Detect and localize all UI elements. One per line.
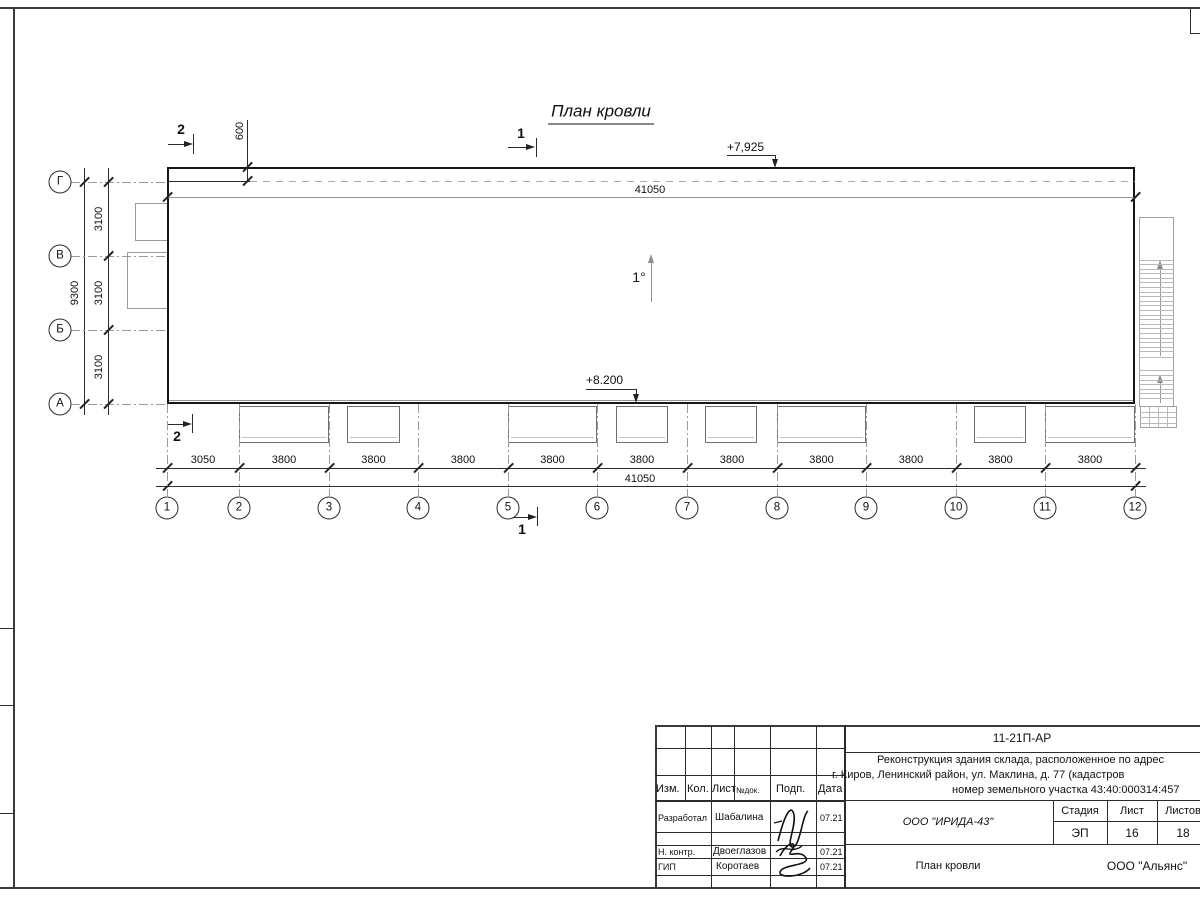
stage-label: Стадия	[1061, 805, 1099, 817]
stair-step	[1139, 328, 1174, 329]
axis-centerline-horizontal	[71, 330, 167, 331]
stair-step	[1139, 296, 1174, 297]
row2-date: 07.21	[820, 847, 843, 857]
frame-top-line	[0, 7, 1200, 9]
row2-name: Двоеглазов	[713, 846, 766, 857]
left-protrusion	[127, 252, 168, 309]
section-cut-line	[536, 138, 537, 157]
design-org: ООО "ИРИДА-43"	[903, 816, 994, 828]
section-mark-1-label: 1	[518, 521, 526, 537]
slope-arrow-line	[651, 262, 652, 302]
dim-line-600	[247, 120, 248, 182]
col-data-label: Дата	[818, 783, 842, 795]
row2-role: Н. контр.	[658, 847, 695, 857]
section-arrow-icon	[528, 514, 537, 520]
stair-step	[1139, 287, 1174, 288]
section-cut-line	[192, 414, 193, 433]
stair-step	[1139, 319, 1174, 320]
axis-centerline-vertical	[777, 404, 778, 496]
stair-step	[1139, 273, 1174, 274]
list-value: 16	[1125, 826, 1138, 840]
dim-text-segment: 3800	[1078, 454, 1102, 466]
axis-centerline-vertical	[329, 404, 330, 496]
platform-grid-line	[1140, 417, 1177, 418]
sheet-name: План кровли	[916, 860, 981, 872]
dim-text-segment: 3800	[361, 454, 385, 466]
axis-circle-12: 12	[1124, 497, 1147, 520]
row3-role: ГИП	[658, 862, 676, 872]
titleblock-row-line	[1053, 821, 1200, 822]
stair-step	[1139, 333, 1174, 334]
dim-text-segment: 3800	[809, 454, 833, 466]
section-cut-line	[537, 507, 538, 526]
left-protrusion	[135, 203, 168, 241]
frame-margin-tick	[0, 813, 13, 814]
canopy	[1045, 406, 1135, 443]
slope-arrow-icon	[648, 254, 654, 263]
titleblock-col-line	[1157, 800, 1158, 844]
axis-circle-1: 1	[156, 497, 179, 520]
canopy-inner-line	[511, 437, 594, 438]
stair-landing-line	[1139, 370, 1174, 371]
axis-centerline-vertical	[687, 404, 688, 496]
canopy-inner-line	[619, 437, 665, 438]
doc-number: 11-21П-АР	[993, 731, 1051, 745]
dim-extension-line	[167, 181, 250, 182]
dim-line-left-total	[84, 168, 85, 415]
row1-date: 07.21	[820, 813, 843, 823]
canopy	[777, 406, 866, 443]
axis-circle-Б: Б	[49, 319, 72, 342]
signature-dvoeglazov-korotaev	[772, 838, 816, 880]
canopy-inner-line	[350, 437, 397, 438]
dim-text-segment: 3800	[988, 454, 1012, 466]
axis-circle-Г: Г	[49, 171, 72, 194]
axis-centerline-vertical	[956, 404, 957, 496]
axis-circle-В: В	[49, 245, 72, 268]
listov-label: Листов	[1165, 805, 1200, 817]
stair-step	[1139, 278, 1174, 279]
canopy-inner-line	[780, 437, 863, 438]
stair-step	[1139, 393, 1174, 394]
stair-step	[1139, 384, 1174, 385]
axis-circle-3: 3	[318, 497, 341, 520]
canopy	[508, 406, 597, 443]
stair-step	[1139, 264, 1174, 265]
titleblock-col-line	[816, 725, 817, 888]
axis-circle-11: 11	[1034, 497, 1057, 520]
axis-centerline-vertical	[597, 404, 598, 496]
stair-step	[1139, 342, 1174, 343]
canopy-inner-line	[1048, 437, 1132, 438]
dim-text-segment: 3800	[630, 454, 654, 466]
row3-name: Коротаев	[716, 861, 759, 872]
dim-text-left-total: 9300	[69, 281, 81, 305]
canopy-inner-line	[708, 437, 754, 438]
project-line3: номер земельного участка 43:40:000314:45…	[952, 784, 1180, 796]
dim-text-segment: 3050	[191, 454, 215, 466]
list-label: Лист	[1120, 805, 1144, 817]
titleblock-left-border	[655, 725, 657, 888]
elevation-top-text: +7,925	[727, 140, 764, 154]
frame-margin-tick	[0, 705, 13, 706]
stair-step	[1139, 292, 1174, 293]
canopy	[974, 406, 1026, 443]
dim-text-segment: 3100	[93, 281, 105, 305]
frame-margin-tick	[0, 628, 13, 629]
titleblock-top-border	[655, 725, 1200, 727]
axis-centerline-vertical	[239, 404, 240, 496]
section-arrow-icon	[184, 141, 193, 147]
axis-centerline-vertical	[508, 404, 509, 496]
section-arrow-icon	[526, 144, 535, 150]
dim-line-bottom-segments	[156, 468, 1146, 469]
corner-stamp-box-bottom	[1190, 33, 1200, 34]
stair-landing-line	[1139, 357, 1174, 358]
row1-name: Шабалина	[715, 812, 763, 823]
axis-circle-10: 10	[945, 497, 968, 520]
platform-grid-line	[1140, 412, 1177, 413]
dim-text-segment: 3800	[899, 454, 923, 466]
titleblock-col-line	[770, 725, 771, 888]
col-izm-label: Изм.	[656, 783, 680, 795]
axis-circle-А: А	[49, 393, 72, 416]
stair-step	[1139, 324, 1174, 325]
section-mark-2-label: 2	[173, 428, 181, 444]
frame-left-line	[13, 7, 15, 889]
slope-label: 1°	[632, 269, 645, 285]
section-cut-line	[193, 134, 194, 154]
axis-circle-4: 4	[407, 497, 430, 520]
section-mark-1-label: 1	[517, 125, 525, 141]
col-podp-label: Подп.	[776, 783, 805, 795]
canopy	[347, 406, 400, 443]
stair-step	[1139, 347, 1174, 348]
elevation-leader	[727, 155, 776, 156]
titleblock-row-line	[845, 800, 1200, 801]
dim-text-600: 600	[234, 122, 246, 140]
elevation-bottom-text: +8.200	[586, 373, 623, 387]
roof-inner-bottom-line	[169, 400, 1133, 401]
stair-step	[1139, 338, 1174, 339]
stair-step	[1139, 301, 1174, 302]
titleblock-row-line	[845, 752, 1200, 753]
elevation-arrow-icon	[633, 394, 639, 403]
project-line1: Реконструкция здания склада, расположенн…	[877, 754, 1164, 766]
stair-step	[1139, 375, 1174, 376]
stair-step	[1139, 269, 1174, 270]
row3-date: 07.21	[820, 862, 843, 872]
stair-step	[1139, 389, 1174, 390]
axis-circle-5: 5	[497, 497, 520, 520]
titleblock-section-divider	[844, 725, 846, 888]
dim-text-segment: 3800	[272, 454, 296, 466]
section-arrow-icon	[183, 421, 192, 427]
canopy-inner-line	[977, 437, 1023, 438]
titleblock-col-line	[685, 725, 686, 800]
axis-circle-2: 2	[228, 497, 251, 520]
stair-step	[1139, 351, 1174, 352]
dim-text-segment: 3100	[93, 355, 105, 379]
axis-circle-9: 9	[855, 497, 878, 520]
stair-step	[1139, 305, 1174, 306]
drawing-title: План кровли	[548, 102, 654, 125]
dim-text-bottom-total: 41050	[625, 473, 656, 485]
listov-value: 18	[1176, 826, 1189, 840]
stair-step	[1139, 398, 1174, 399]
titleblock-row-line	[655, 748, 844, 749]
titleblock-row-line	[845, 844, 1200, 845]
axis-centerline-vertical	[418, 404, 419, 496]
axis-circle-6: 6	[586, 497, 609, 520]
canopy	[616, 406, 668, 443]
col-ndok-label: №док.	[736, 786, 759, 795]
axis-circle-8: 8	[766, 497, 789, 520]
elevation-arrow-icon	[772, 159, 778, 168]
axis-centerline-vertical	[1045, 404, 1046, 496]
titleblock-col-line	[711, 725, 712, 888]
parapet-line	[167, 197, 1135, 198]
titleblock-col-line	[1107, 800, 1108, 844]
canopy	[705, 406, 757, 443]
company-name: ООО "Альянс"	[1107, 859, 1187, 873]
frame-bottom-line	[0, 887, 1200, 889]
dim-text-segment: 3800	[720, 454, 744, 466]
axis-centerline-vertical	[1135, 404, 1136, 496]
corner-stamp-box-left	[1190, 9, 1191, 33]
axis-circle-7: 7	[676, 497, 699, 520]
section-mark-2-label: 2	[177, 121, 185, 137]
stair-step	[1139, 380, 1174, 381]
drawing-sheet: План кровли 600 41050 2 1 +7,925 +8.200 …	[0, 0, 1200, 900]
canopy	[239, 406, 329, 443]
elevation-leader	[586, 389, 637, 390]
dim-text-segment: 3800	[540, 454, 564, 466]
stair-step	[1139, 310, 1174, 311]
stair-step	[1139, 282, 1174, 283]
axis-centerline-horizontal	[71, 256, 167, 257]
axis-g-dashed-line	[250, 181, 1135, 182]
project-line2: г. Киров, Ленинский район, ул. Маклина, …	[832, 769, 1124, 781]
platform-grid-line	[1140, 423, 1177, 424]
titleblock-col-line	[1053, 800, 1054, 844]
col-kol-label: Кол.	[687, 783, 709, 795]
dim-text-segment: 3800	[451, 454, 475, 466]
stair-step	[1139, 315, 1174, 316]
dim-text-segment: 3100	[93, 207, 105, 231]
canopy-inner-line	[242, 437, 326, 438]
row1-role: Разработал	[658, 813, 707, 823]
dim-line-bottom-total	[156, 486, 1146, 487]
dim-text-top-total: 41050	[635, 184, 666, 196]
stage-value: ЭП	[1071, 826, 1088, 840]
axis-centerline-vertical	[866, 404, 867, 496]
titleblock-row-line	[655, 775, 844, 776]
dim-line-left-segments	[108, 168, 109, 415]
axis-centerline-vertical	[167, 404, 168, 496]
col-list-label: Лист	[712, 783, 736, 795]
